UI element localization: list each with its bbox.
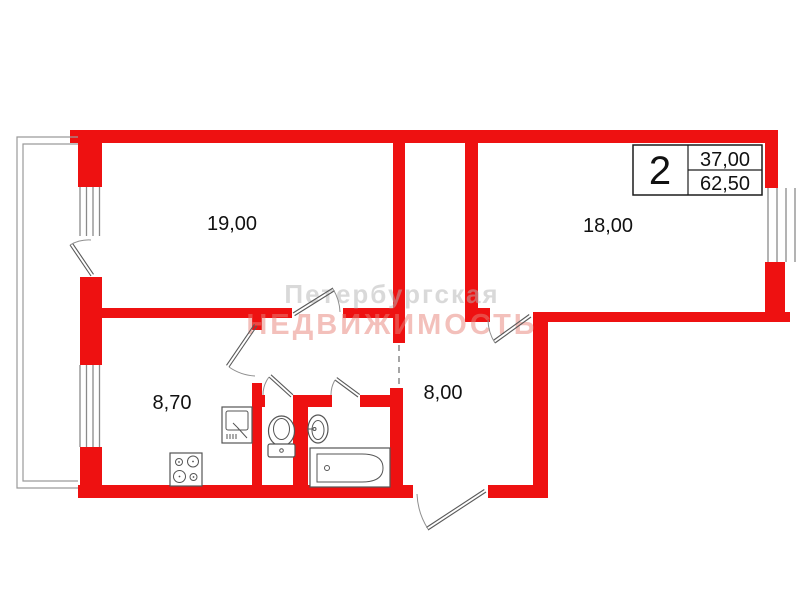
wall-left-corner: [78, 130, 102, 187]
room-label-kitchen: 8,70: [153, 392, 192, 414]
bathtub-icon: [310, 448, 390, 487]
info-room-count: 2: [649, 149, 671, 193]
info-living-area: 37,00: [700, 149, 750, 171]
door-bathroom: [331, 378, 360, 397]
window-left-upper: [80, 187, 100, 236]
window-right: [768, 188, 795, 262]
wall-wc-bath: [293, 395, 308, 485]
info-total-area: 62,50: [700, 173, 750, 195]
door-kitchen: [227, 324, 258, 376]
door-balcony: [70, 240, 94, 276]
door-wc: [263, 375, 293, 397]
room-label-hallway: 8,00: [424, 382, 463, 404]
room-label-living: 19,00: [207, 213, 257, 235]
wall-bedroom-bottom: [533, 312, 790, 322]
info-table: 2 37,00 62,50: [633, 145, 762, 195]
wall-right-bottom: [765, 262, 785, 322]
wall-top: [70, 130, 778, 143]
wall-bath-right: [390, 388, 403, 485]
sink-icon: [307, 415, 328, 443]
kitchen-sink-icon: [222, 407, 252, 443]
stove-icon: [170, 453, 202, 486]
floor-plan-canvas: Петербургская НЕДВИЖИМОСТЬ: [0, 0, 800, 600]
watermark: Петербургская НЕДВИЖИМОСТЬ: [246, 279, 537, 341]
wall-right-top: [765, 130, 778, 188]
room-label-bedroom: 18,00: [583, 215, 633, 237]
wall-left-mid: [80, 277, 102, 365]
floor-plan: Петербургская НЕДВИЖИМОСТЬ: [0, 0, 800, 600]
door-entrance: [417, 490, 486, 531]
window-left-lower: [80, 365, 100, 447]
watermark-line1: Петербургская: [284, 279, 499, 309]
wall-bath-top-b: [360, 395, 390, 407]
wall-wc-top: [252, 395, 265, 407]
wall-bath-top-a: [308, 395, 332, 407]
toilet-icon: [268, 416, 295, 457]
balcony-outline: [17, 137, 78, 488]
watermark-line2: НЕДВИЖИМОСТЬ: [246, 309, 537, 341]
